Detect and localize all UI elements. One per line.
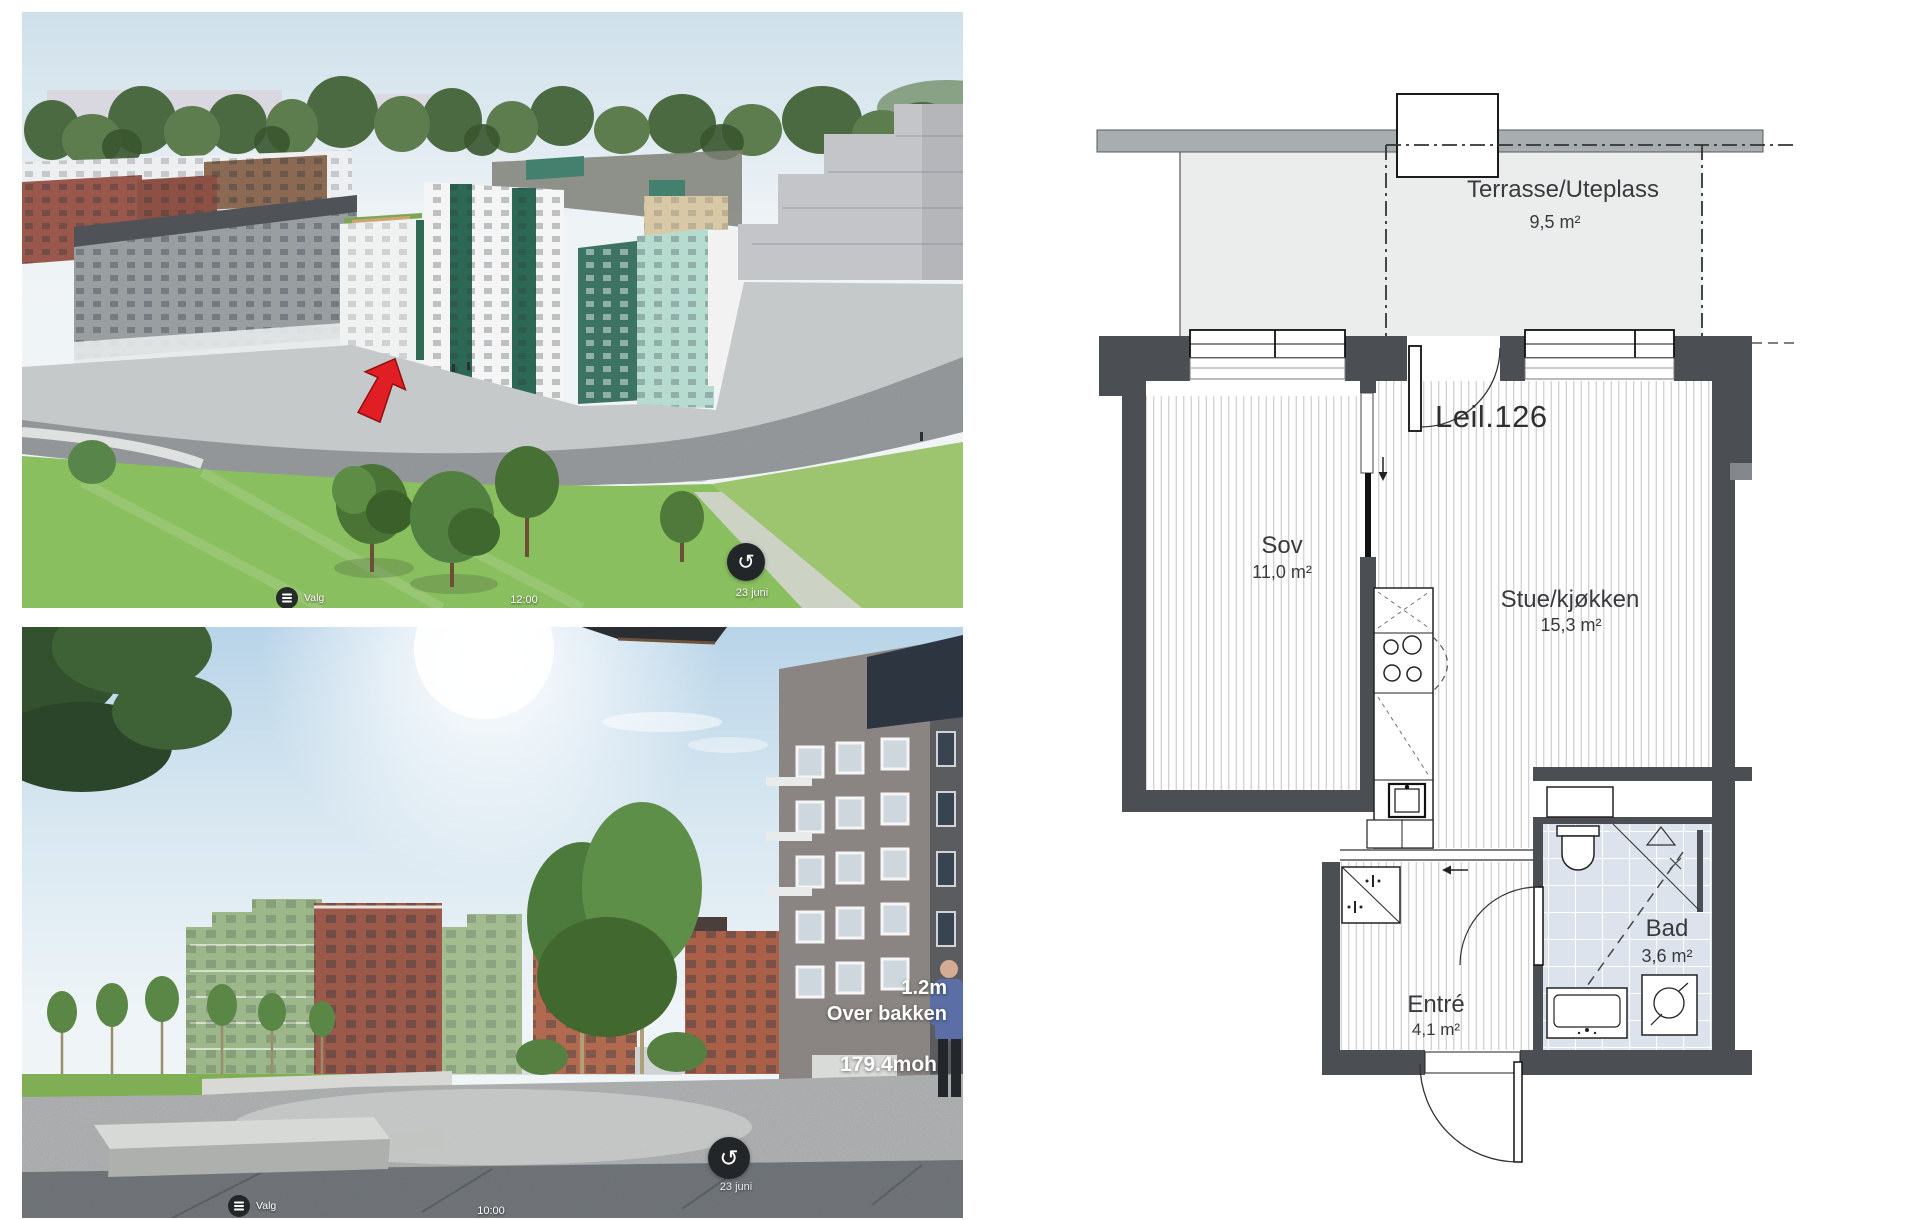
rotate-view-button[interactable]: ↺ bbox=[708, 1137, 750, 1179]
height-caption: Over bakken bbox=[827, 1001, 947, 1027]
facade-window-box bbox=[1397, 94, 1498, 177]
rotate-icon: ↺ bbox=[737, 550, 755, 575]
date-label: 23 juni bbox=[706, 1181, 766, 1193]
cistern bbox=[1547, 787, 1613, 817]
room-area-living: 15,3 m² bbox=[1540, 615, 1601, 635]
sliding-door bbox=[1361, 393, 1373, 557]
height-value: 1.2m bbox=[827, 975, 947, 1001]
time-label: 10:00 bbox=[461, 1205, 521, 1217]
floorplan-panel: Leil.126 Terrasse/Uteplass 9,5 m² Sov 11… bbox=[1090, 75, 1810, 1215]
menu-button[interactable]: Valg bbox=[228, 1195, 276, 1217]
list-menu-icon bbox=[228, 1195, 250, 1217]
ground bbox=[22, 1071, 963, 1218]
list-menu-icon bbox=[276, 587, 298, 608]
aerial-render-panel[interactable]: Valg 12:00 ↺ 23 juni bbox=[22, 12, 963, 608]
menu-button-label: Valg bbox=[256, 1200, 276, 1212]
room-label-bedroom: Sov bbox=[1261, 532, 1302, 559]
threshold bbox=[1340, 850, 1533, 860]
bath-sink bbox=[1547, 988, 1627, 1038]
rotate-icon: ↺ bbox=[719, 1145, 738, 1172]
room-area-terrace: 9,5 m² bbox=[1529, 212, 1580, 232]
bedroom-floor bbox=[1146, 396, 1360, 790]
room-label-terrace: Terrasse/Uteplass bbox=[1467, 176, 1659, 203]
room-label-entry: Entré bbox=[1407, 991, 1464, 1018]
date-label: 23 juni bbox=[722, 587, 782, 599]
room-area-entry: 4,1 m² bbox=[1412, 1020, 1461, 1039]
floorplan: Leil.126 Terrasse/Uteplass 9,5 m² Sov 11… bbox=[1090, 75, 1810, 1215]
horizon-buildings bbox=[186, 899, 807, 1075]
street-render-scene bbox=[22, 627, 963, 1218]
room-label-bath: Bad bbox=[1646, 915, 1689, 942]
wardrobe bbox=[1342, 867, 1400, 923]
height-overlay: 1.2m Over bakken bbox=[827, 975, 947, 1027]
elevation-overlay: 179.4moh bbox=[840, 1052, 937, 1078]
entrance-door bbox=[1420, 1052, 1522, 1162]
room-label-living: Stue/kjøkken bbox=[1501, 586, 1640, 613]
room-area-bedroom: 11,0 m² bbox=[1252, 562, 1312, 582]
rotate-view-button[interactable]: ↺ bbox=[727, 543, 765, 581]
street-render-panel[interactable]: 1.2m Over bakken 179.4moh Valg 10:00 ↺ 2… bbox=[22, 627, 963, 1218]
room-area-bath: 3,6 m² bbox=[1641, 946, 1692, 966]
living-window bbox=[1525, 330, 1674, 379]
bedroom-window bbox=[1190, 330, 1345, 379]
aerial-render-scene bbox=[22, 12, 963, 608]
washing-machine bbox=[1642, 975, 1697, 1035]
menu-button-label: Valg bbox=[304, 592, 324, 604]
menu-button[interactable]: Valg bbox=[276, 587, 324, 608]
unit-label: Leil.126 bbox=[1435, 399, 1548, 434]
kitchen-sink bbox=[1389, 784, 1425, 817]
time-label: 12:00 bbox=[494, 594, 554, 606]
